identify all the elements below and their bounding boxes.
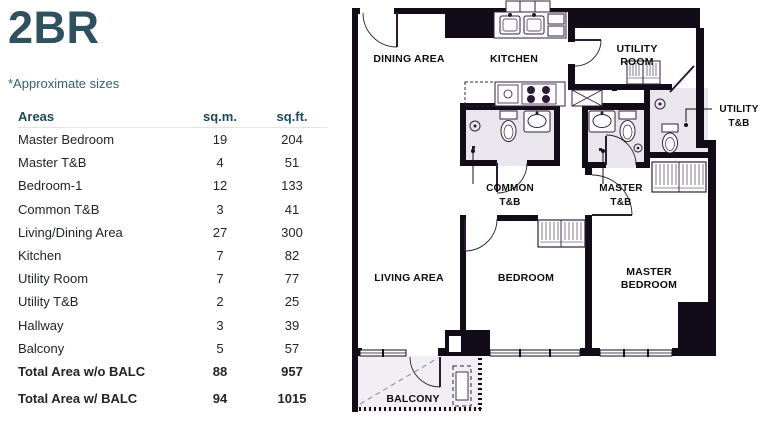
bedroom-closet xyxy=(538,220,585,247)
row-label: Balcony xyxy=(18,341,184,356)
header-sqm: sq.m. xyxy=(184,109,256,124)
row-label: Master T&B xyxy=(18,155,184,170)
row-label: Total Area w/o BALC xyxy=(18,364,184,379)
row-sqm: 7 xyxy=(184,271,256,286)
label-master-bedroom-1: MASTER xyxy=(626,266,672,278)
row-sqft: 25 xyxy=(256,294,328,309)
row-sqft: 39 xyxy=(256,318,328,333)
label-master-tb-2: T&B xyxy=(610,197,631,208)
table-row: Hallway 3 39 xyxy=(18,314,328,337)
areas-panel: 2BR *Approximate sizes Areas sq.m. sq.ft… xyxy=(0,0,350,424)
shaft xyxy=(572,90,602,106)
row-sqft: 41 xyxy=(256,202,328,217)
label-utility-tb-2: T&B xyxy=(728,118,749,129)
areas-table-body: Master Bedroom 19 204 Master T&B 4 51 Be… xyxy=(18,128,328,410)
row-sqft: 133 xyxy=(256,178,328,193)
row-label: Common T&B xyxy=(18,202,184,217)
row-label: Total Area w/ BALC xyxy=(18,391,184,406)
label-common-tb-1: COMMON xyxy=(486,183,534,194)
floor-plan: DINING AREA KITCHEN UTILITY ROOM UTILITY… xyxy=(350,0,770,424)
table-row: Master T&B 4 51 xyxy=(18,151,328,174)
row-sqm: 19 xyxy=(184,132,256,147)
row-label: Master Bedroom xyxy=(18,132,184,147)
label-utility-room-1: UTILITY xyxy=(616,43,657,55)
row-sqm: 12 xyxy=(184,178,256,193)
row-sqm: 2 xyxy=(184,294,256,309)
label-living-area: LIVING AREA xyxy=(374,272,444,284)
row-sqm: 7 xyxy=(184,248,256,263)
approximate-sizes-note: *Approximate sizes xyxy=(8,76,119,91)
table-row: Total Area w/ BALC 94 1015 xyxy=(18,387,328,410)
row-label: Bedroom-1 xyxy=(18,178,184,193)
label-bedroom: BEDROOM xyxy=(498,272,554,284)
row-sqm: 4 xyxy=(184,155,256,170)
row-sqft: 204 xyxy=(256,132,328,147)
table-row: Common T&B 3 41 xyxy=(18,198,328,221)
areas-table: Areas sq.m. sq.ft. Master Bedroom 19 204… xyxy=(18,105,328,410)
row-sqft: 82 xyxy=(256,248,328,263)
row-label: Utility T&B xyxy=(18,294,184,309)
areas-table-header: Areas sq.m. sq.ft. xyxy=(18,105,328,128)
row-sqft: 51 xyxy=(256,155,328,170)
page-title: 2BR xyxy=(8,2,100,54)
row-sqm: 5 xyxy=(184,341,256,356)
row-label: Kitchen xyxy=(18,248,184,263)
master-closet xyxy=(652,162,706,192)
table-row: Bedroom-1 12 133 xyxy=(18,174,328,197)
label-dining-area: DINING AREA xyxy=(373,53,444,65)
row-label: Living/Dining Area xyxy=(18,225,184,240)
header-areas: Areas xyxy=(18,109,184,124)
row-sqft: 1015 xyxy=(256,391,328,406)
label-balcony: BALCONY xyxy=(386,393,439,405)
header-sqft: sq.ft. xyxy=(256,109,328,124)
row-sqft: 57 xyxy=(256,341,328,356)
row-sqm: 3 xyxy=(184,318,256,333)
label-utility-room-2: ROOM xyxy=(620,56,654,68)
row-sqm: 3 xyxy=(184,202,256,217)
table-row: Kitchen 7 82 xyxy=(18,244,328,267)
table-row: Utility T&B 2 25 xyxy=(18,290,328,313)
table-row: Utility Room 7 77 xyxy=(18,267,328,290)
row-sqm: 27 xyxy=(184,225,256,240)
column-notch xyxy=(449,336,461,352)
row-label: Hallway xyxy=(18,318,184,333)
table-row: Master Bedroom 19 204 xyxy=(18,128,328,151)
row-sqft: 300 xyxy=(256,225,328,240)
row-sqm: 94 xyxy=(184,391,256,406)
table-row: Balcony 5 57 xyxy=(18,337,328,360)
row-label: Utility Room xyxy=(18,271,184,286)
windows xyxy=(360,349,672,357)
label-utility-tb-1: UTILITY xyxy=(719,104,758,115)
label-master-tb-1: MASTER xyxy=(599,183,643,194)
label-common-tb-2: T&B xyxy=(499,197,520,208)
label-kitchen: KITCHEN xyxy=(490,53,538,65)
table-row: Living/Dining Area 27 300 xyxy=(18,221,328,244)
row-sqft: 77 xyxy=(256,271,328,286)
row-sqm: 88 xyxy=(184,364,256,379)
row-sqft: 957 xyxy=(256,364,328,379)
table-row: Total Area w/o BALC 88 957 xyxy=(18,360,328,383)
label-master-bedroom-2: BEDROOM xyxy=(621,279,677,291)
